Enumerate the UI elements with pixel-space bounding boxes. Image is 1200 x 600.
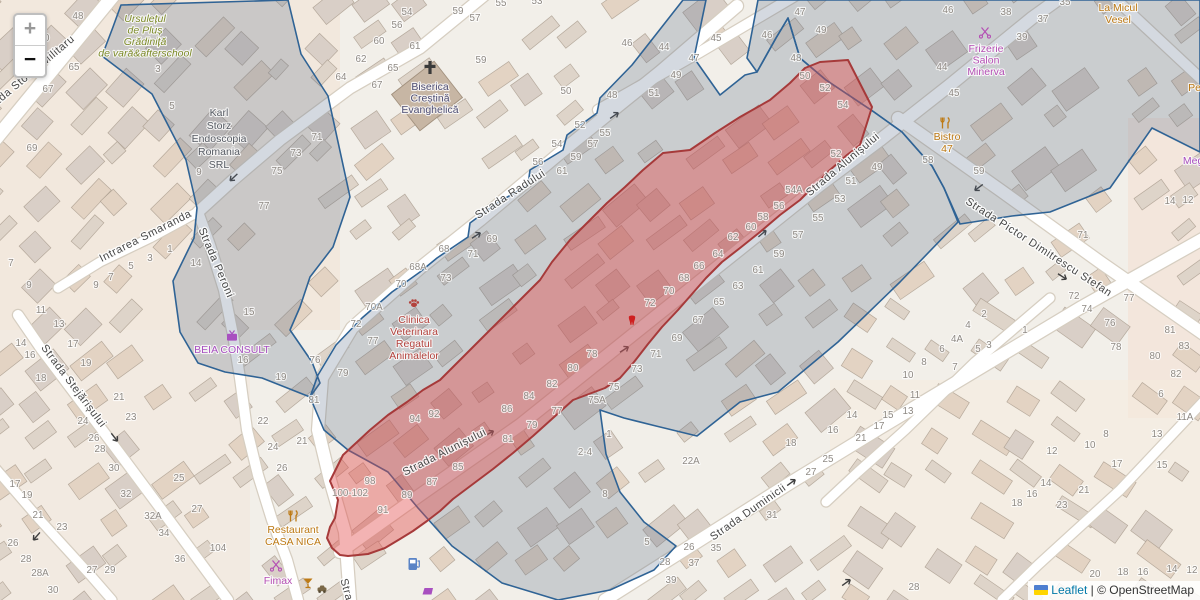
house-number: 7 [952,362,957,373]
house-number: 61 [557,166,568,177]
house-number: 8 [602,489,608,500]
house-number: 69 [27,143,38,154]
house-number: 49 [671,70,682,81]
poi-label: de vară&afterschool [98,48,192,60]
house-number: 9 [196,167,201,178]
poi-label: Veterinara [390,326,438,338]
house-number: 19 [81,358,92,369]
house-number: 1 [606,429,611,440]
house-number: 77 [259,201,270,212]
house-number: 2-4 [578,447,593,458]
house-number: 71 [1078,230,1089,241]
house-number: 44 [659,42,670,53]
building [479,61,519,96]
house-number: 8 [921,357,927,368]
poi-label: Pet [1188,82,1200,94]
house-number: 61 [753,265,764,276]
house-number: 22A [682,456,700,467]
house-number: 73 [632,364,643,375]
house-number: 32 [121,489,132,500]
house-number: 13 [903,406,914,417]
house-number: 2 [981,309,986,320]
poi-label: Ursulețul [124,13,166,25]
house-number: 19 [276,372,287,383]
house-number: 6 [1158,389,1164,400]
poi-label: Karl [210,107,229,119]
house-number: 28A [31,568,49,579]
building [522,16,560,50]
house-number: 64 [336,72,347,83]
house-number: 37 [1038,14,1049,25]
house-number: 61 [410,41,421,52]
house-number: 79 [338,368,349,379]
house-number: 73 [441,273,452,284]
house-number: 29 [105,565,116,576]
house-number: 49 [872,162,883,173]
house-number: 24 [268,442,279,453]
house-number: 70 [664,286,675,297]
house-number: 26 [8,538,19,549]
poi-label: Biserica [411,81,449,93]
house-number: 16 [25,350,36,361]
house-number: 48 [73,11,84,22]
poi-label: Restaurant [267,524,318,536]
house-number: 5 [975,344,981,355]
house-number: 24 [78,416,89,427]
house-number: 28 [660,557,671,568]
house-number: 17 [68,339,79,350]
house-number: 82 [1171,369,1182,380]
house-number: 46 [622,38,633,49]
poi-label: de Pluș [127,25,163,37]
house-number: 26 [277,463,288,474]
house-number: 6 [939,344,945,355]
house-number: 86 [502,404,513,415]
poi-label: Animalelor [389,350,439,362]
poi-label: Mega [1183,155,1200,167]
house-number: 7 [108,272,113,283]
house-number: 60 [746,222,757,233]
house-number: 23 [57,522,68,533]
house-number: 78 [587,349,598,360]
house-number: 12 [1187,565,1198,576]
house-number: 21 [1079,485,1090,496]
poi-label: SRL [209,159,230,171]
house-number: 56 [392,20,403,31]
house-number: 58 [758,212,769,223]
house-number: 78 [1111,342,1122,353]
house-number: 5 [128,261,134,272]
house-number: 44 [937,62,948,73]
house-number: 91 [378,505,389,516]
building [841,348,872,378]
house-number: 18 [1012,498,1023,509]
house-number: 18 [786,438,797,449]
house-number: 22 [258,416,269,427]
leaflet-link[interactable]: Leaflet [1051,583,1087,597]
house-number: 71 [651,349,662,360]
poi-label: Bistro [934,131,961,143]
building [354,143,394,180]
house-number: 31 [767,510,778,521]
attribution-separator: | [1091,583,1094,597]
house-number: 57 [470,13,481,24]
house-number: 50 [800,71,811,82]
poi-label: La Micul [1098,2,1137,14]
house-number: 4 [965,320,971,331]
house-number: 55 [813,213,824,224]
house-number: 15 [883,410,894,421]
building [886,338,915,362]
house-number: 18 [36,373,47,384]
house-number: 39 [1017,32,1028,43]
house-number: 30 [109,463,120,474]
house-number: 48 [791,53,802,64]
house-number: 14 [1167,564,1178,575]
building [351,111,391,149]
house-number: 70A [365,302,383,313]
building [430,547,455,572]
house-number: 62 [356,54,367,65]
house-number: 16 [238,355,249,366]
attribution-bar: Leaflet | © OpenStreetMap [1028,581,1200,600]
house-number: 14 [16,338,27,349]
house-number: 46 [943,5,954,16]
house-number: 104 [210,543,227,554]
house-number: 45 [949,88,960,99]
house-number: 16 [1027,489,1038,500]
house-number: 47 [689,53,700,64]
house-number: 81 [1165,325,1176,336]
building [802,580,826,600]
house-number: 52 [575,120,586,131]
osm-credit[interactable]: © OpenStreetMap [1097,583,1194,597]
house-number: 7 [8,258,13,269]
house-number: 68 [439,244,450,255]
house-number: 64 [713,249,724,260]
building [557,21,586,48]
house-number: 19 [22,490,33,501]
building [350,220,372,240]
poi-label: Endoscopia [192,133,247,145]
house-number: 12 [1183,195,1194,206]
building [724,416,756,442]
house-number: 16 [1138,567,1149,578]
building [885,298,910,320]
poi-label: Frizerie [968,43,1003,55]
house-number: 21 [114,392,125,403]
house-number: 79 [527,420,538,431]
poi-label: Fimax [264,575,293,587]
house-number: 55 [496,0,507,9]
building [476,100,508,128]
poi-label: Clinica [398,314,430,326]
house-number: 98 [365,476,376,487]
house-number: 34 [159,528,170,539]
house-number: 89 [402,490,413,501]
house-number: 67 [43,84,54,95]
house-number: 59 [476,55,487,66]
house-number: 21 [297,436,308,447]
house-number: 11 [36,305,46,316]
house-number: 77 [1124,293,1135,304]
house-number: 14 [1165,196,1176,207]
house-number: 76 [310,355,321,366]
house-number: 17 [10,479,21,490]
house-number: 50 [561,86,572,97]
house-number: 21 [33,510,44,521]
ukraine-flag-icon [1034,585,1048,595]
house-number: 3 [155,64,161,75]
house-number: 28 [21,554,32,565]
building [430,589,459,600]
house-number: 55 [600,128,611,139]
house-number: 53 [835,194,846,205]
house-number: 13 [1152,429,1163,440]
house-number: 69 [672,333,683,344]
house-number: 74 [1082,304,1093,315]
house-number: 13 [54,319,65,330]
poi-label: Romania [198,146,240,158]
house-number: 35 [711,543,722,554]
house-number: 20 [1090,569,1101,580]
house-number: 18 [1118,567,1129,578]
house-number: 51 [649,88,660,99]
house-number: 37 [689,558,700,569]
house-number: 82 [547,379,558,390]
zoom-control: + − [13,13,47,78]
building [639,459,665,482]
house-number: 12 [1047,446,1058,457]
house-number: 11A [1177,412,1194,423]
house-number: 5 [644,537,650,548]
house-number: 68 [679,273,690,284]
house-number: 81 [503,434,514,445]
house-number: 75 [609,382,620,393]
house-number: 8 [1103,429,1109,440]
house-number: 46 [762,30,773,41]
poi-label: BEIA CONSULT [194,344,270,356]
house-number: 47 [795,7,806,18]
house-number: 71 [312,132,323,143]
house-number: 38 [1001,7,1012,18]
building [763,546,803,582]
poi-label: Creștină [410,93,449,105]
house-number: 27 [806,467,817,478]
house-number: 51 [846,176,857,187]
house-number: 52 [820,83,831,94]
building [355,179,388,208]
house-number: 35 [1060,0,1071,8]
house-number: 10 [1085,440,1096,451]
house-number: 57 [793,230,804,241]
poi-label: 47 [941,143,953,155]
zoom-in-button[interactable]: + [15,15,45,46]
house-number: 80 [1150,351,1161,362]
house-number: 57 [588,139,599,150]
poi-mega: Mega [1183,155,1200,167]
house-number: 3 [147,253,153,264]
fuel-icon [409,558,420,570]
zoom-out-button[interactable]: − [15,46,45,76]
house-number: 54 [552,139,563,150]
house-number: 70 [396,279,407,290]
house-number: 49 [816,25,827,36]
poi-label: Vesel [1105,14,1131,26]
house-number: 15 [244,307,255,318]
building [471,589,502,600]
house-number: 4A [951,334,963,345]
house-number: 26 [89,433,100,444]
house-number: 69 [487,234,498,245]
poi-label: Grădiniță [124,36,167,48]
house-number: 36 [175,554,186,565]
house-number: 45 [711,33,722,44]
house-number: 17 [1112,459,1123,470]
house-number: 25 [174,473,185,484]
house-number: 54 [402,7,413,18]
house-number: 53 [532,0,543,7]
building [601,0,642,19]
building [554,64,579,88]
house-number: 28 [95,444,106,455]
house-number: 62 [728,232,739,243]
building [761,588,798,600]
house-number: 15 [1157,460,1168,471]
house-number: 92 [429,409,440,420]
house-number: 14 [1041,478,1052,489]
house-number: 75 [272,166,283,177]
poi-label: Storz [207,120,232,132]
house-number: 27 [87,565,98,576]
poi-label: Minerva [967,66,1005,78]
house-number: 73 [291,148,302,159]
poi-label: Regatul [396,338,432,350]
house-number: 77 [552,406,563,417]
house-number: 56 [533,157,544,168]
house-number: 14 [191,258,202,269]
house-number: 3 [986,340,992,351]
house-number: 85 [453,462,464,473]
poi-label: Evanghelică [401,104,458,116]
building [352,0,390,22]
house-number: 60 [374,36,385,47]
house-number: 25 [823,454,834,465]
house-number: 59 [774,249,785,260]
house-number: 23 [126,412,137,423]
house-number: 76 [1105,318,1116,329]
house-number: 54A [785,185,803,196]
house-number: 59 [453,6,464,17]
shop-icon [423,588,434,595]
house-number: 72 [1069,291,1080,302]
house-number: 87 [427,477,438,488]
house-number: 94 [410,414,421,425]
house-number: 68A [409,262,427,273]
house-number: 67 [693,315,704,326]
house-number: 67 [372,80,383,91]
house-number: 56 [774,201,785,212]
house-number: 59 [571,152,582,163]
house-number: 9 [93,280,98,291]
house-number: 72 [351,319,362,330]
house-number: 9 [26,280,31,291]
house-number: 80 [568,363,579,374]
house-number: 54 [838,100,849,111]
house-number: 58 [923,155,934,166]
house-number: 39 [666,575,677,586]
house-number: 11 [910,390,920,401]
house-number: 71 [468,249,479,260]
building [925,340,949,362]
house-number: 10 [903,370,914,381]
house-number: 65 [714,297,725,308]
building [1005,267,1034,295]
house-number: 63 [733,281,744,292]
house-number: 75A [588,395,606,406]
house-number: 26 [684,542,695,553]
house-number: 21 [856,433,867,444]
house-number: 66 [694,261,705,272]
house-number: 81 [309,395,320,406]
house-number: 23 [1057,500,1068,511]
house-number: 83 [1179,341,1190,352]
poi-pet: Pet [1188,82,1200,94]
house-number: 1 [167,244,172,255]
house-number: 30 [48,585,59,596]
house-number: 48 [607,90,618,101]
house-number: 28 [909,582,920,593]
building [724,579,759,600]
poi-label: CASA NICA [265,536,321,548]
car-icon [318,586,327,593]
house-number: 84 [524,391,535,402]
house-number: 5 [169,101,175,112]
house-number: 16 [828,425,839,436]
house-number: 1 [1022,325,1027,336]
house-number: 32A [144,511,162,522]
house-number: 65 [69,62,80,73]
building [387,194,419,227]
house-number: 72 [645,298,656,309]
poi-label: Salon [973,55,1000,67]
house-number: 77 [368,336,379,347]
house-number: 14 [847,410,858,421]
map-canvas[interactable]: 4850656769359737571545660626465676159575… [0,0,1200,600]
house-number: 100-102 [332,488,368,499]
house-number: 17 [874,421,885,432]
house-number: 65 [388,63,399,74]
house-number: 27 [192,504,203,515]
map[interactable]: 4850656769359737571545660626465676159575… [0,0,1200,600]
house-number: 59 [974,166,985,177]
